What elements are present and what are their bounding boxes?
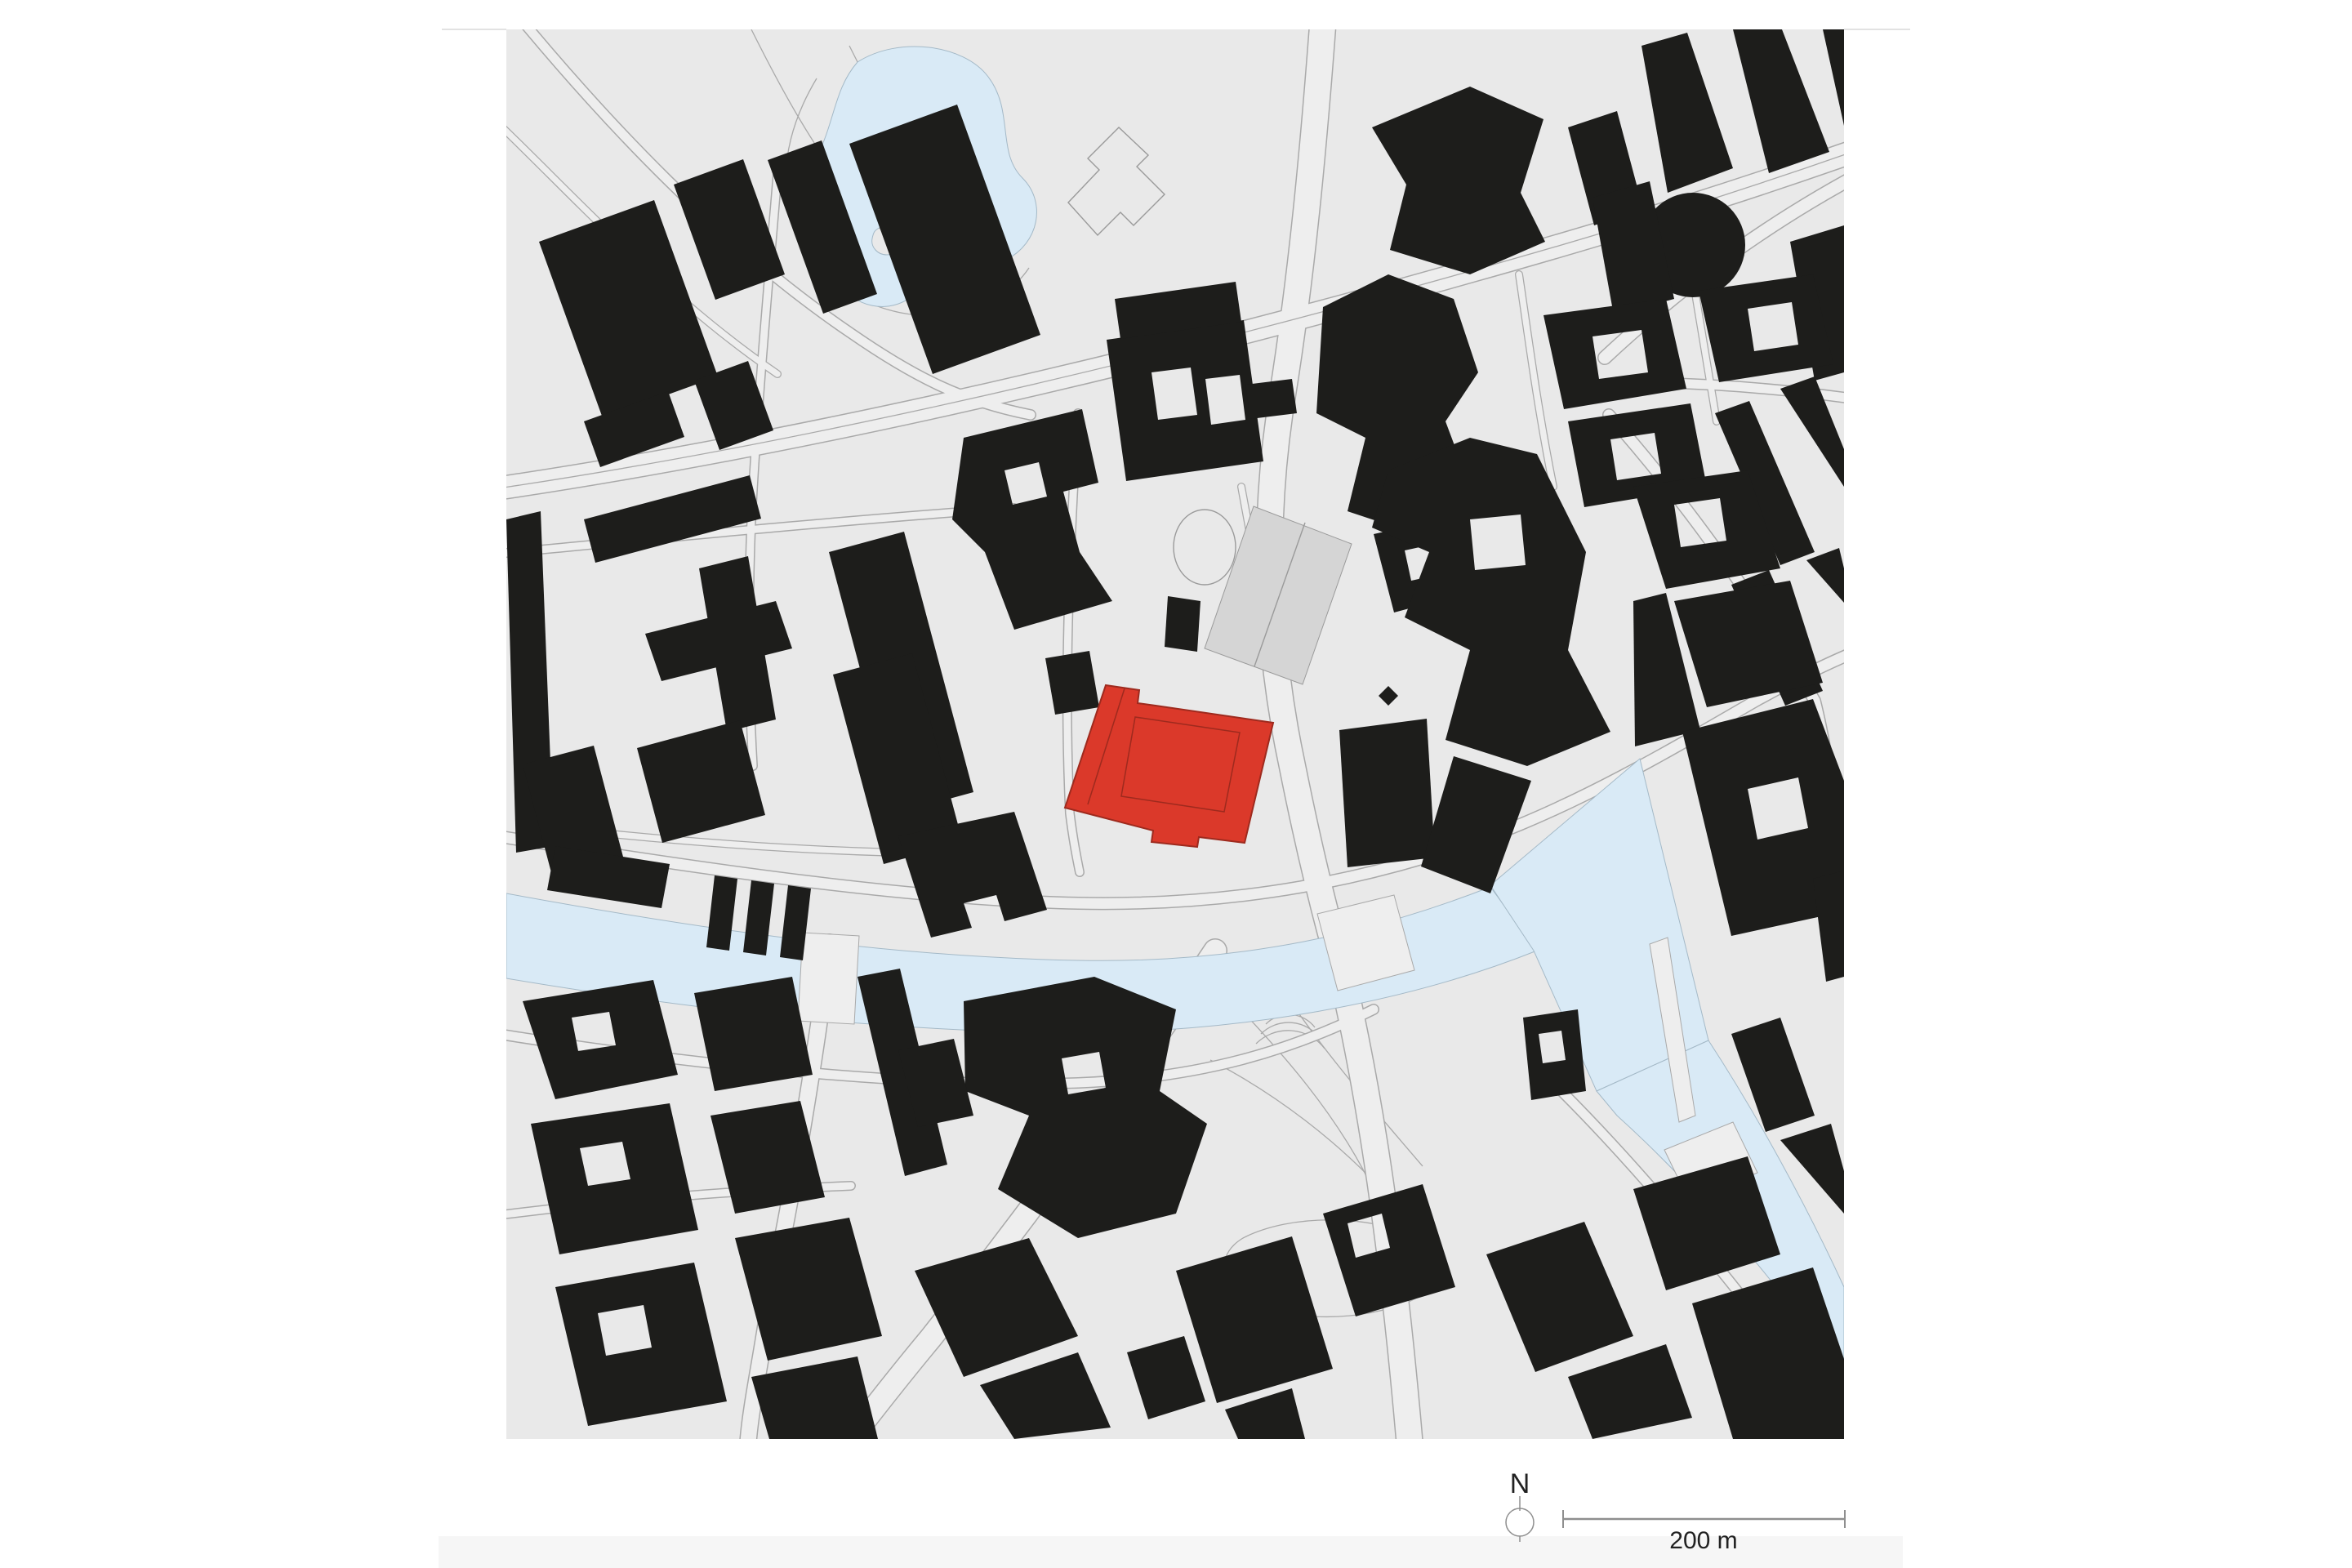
north-indicator: N <box>1506 1468 1534 1542</box>
building-footprint <box>694 977 813 1091</box>
building-footprint <box>1165 596 1200 652</box>
building-footprint <box>1339 719 1435 867</box>
north-circle-icon <box>1506 1508 1534 1536</box>
site-plan-figure: N 200 m <box>0 0 2352 1568</box>
scale-bar-label: 200 m <box>1669 1527 1737 1554</box>
north-label: N <box>1510 1468 1530 1499</box>
building-footprint <box>1245 379 1297 419</box>
map-area <box>498 21 1852 1442</box>
building-strip <box>706 875 811 960</box>
site-plan-canvas: N 200 m <box>0 0 2352 1568</box>
bridge <box>798 933 859 1024</box>
